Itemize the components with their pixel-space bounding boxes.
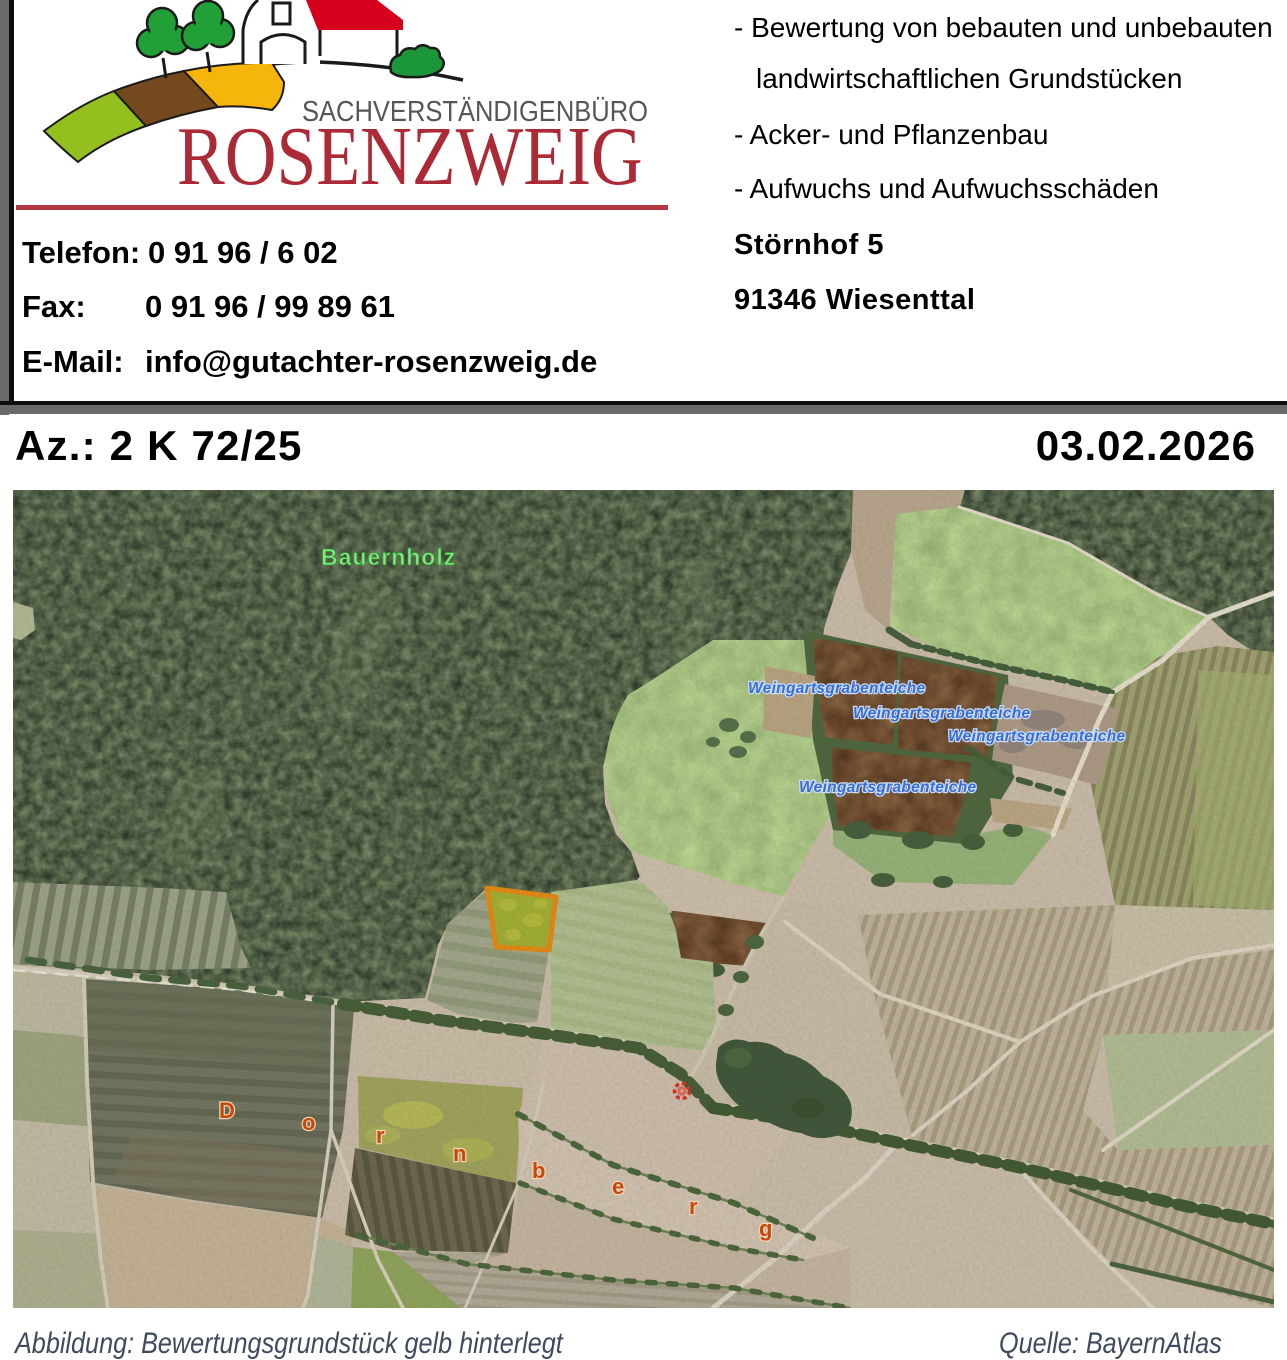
- svg-text:D: D: [219, 1098, 235, 1123]
- svg-text:n: n: [453, 1141, 466, 1166]
- svg-text:e: e: [612, 1174, 624, 1199]
- svg-text:Bauernholz: Bauernholz: [321, 544, 456, 570]
- svg-text:o: o: [302, 1110, 315, 1135]
- svg-text:r: r: [376, 1123, 385, 1148]
- svg-text:g: g: [759, 1216, 772, 1241]
- svg-text:Weingartsgrabenteiche: Weingartsgrabenteiche: [799, 779, 977, 796]
- svg-text:Weingartsgrabenteiche: Weingartsgrabenteiche: [853, 705, 1031, 722]
- svg-text:b: b: [532, 1158, 545, 1183]
- svg-text:Weingartsgrabenteiche: Weingartsgrabenteiche: [948, 728, 1126, 745]
- svg-text:r: r: [689, 1194, 698, 1219]
- svg-text:Weingartsgrabenteiche: Weingartsgrabenteiche: [748, 680, 926, 697]
